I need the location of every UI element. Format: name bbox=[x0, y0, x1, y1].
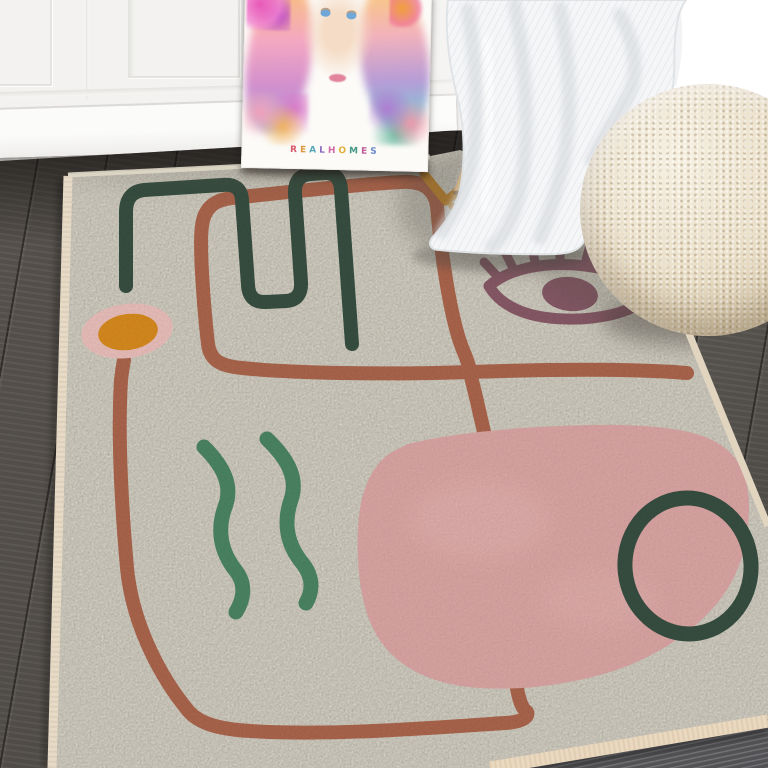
room-photo: REALHOMES bbox=[0, 0, 768, 768]
